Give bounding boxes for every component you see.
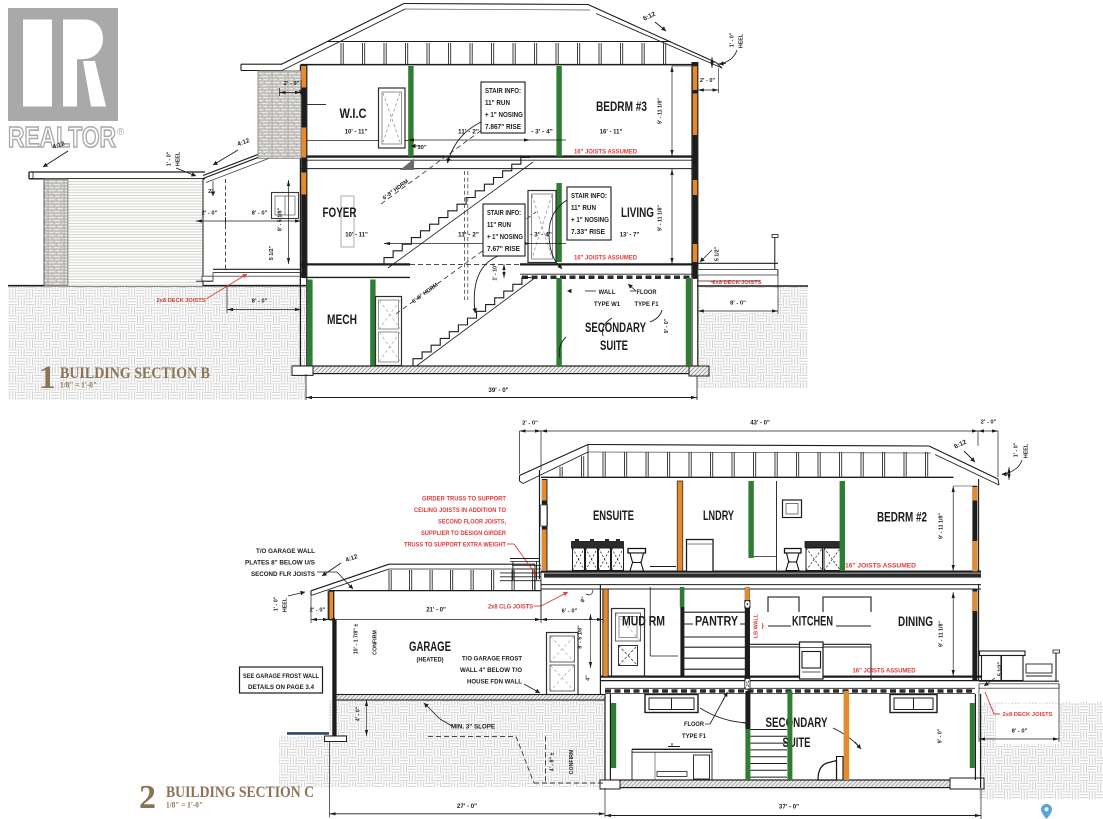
svg-text:7.33" RISE: 7.33" RISE: [571, 229, 605, 236]
svg-text:DETAILS ON PAGE 3.4: DETAILS ON PAGE 3.4: [248, 685, 315, 691]
svg-text:1' - 0": 1' - 0": [1014, 442, 1020, 457]
svg-text:7.67" RISE: 7.67" RISE: [487, 246, 520, 253]
svg-text:MECH: MECH: [327, 312, 357, 327]
svg-text:11" RUN: 11" RUN: [485, 100, 510, 107]
svg-text:4": 4": [586, 675, 592, 681]
svg-text:TRUSS TO SUPPORT EXTRA WEIGHT: TRUSS TO SUPPORT EXTRA WEIGHT: [404, 542, 506, 549]
svg-text:8' - 5 1/8": 8' - 5 1/8": [278, 207, 284, 231]
svg-text:2x8 DECK JOISTS: 2x8 DECK JOISTS: [157, 298, 206, 304]
svg-text:16" JOISTS ASSUMED: 16" JOISTS ASSUMED: [845, 564, 917, 570]
svg-text:SUITE: SUITE: [600, 338, 628, 353]
svg-text:16' - 11": 16' - 11": [600, 130, 623, 136]
svg-text:KITCHEN: KITCHEN: [792, 614, 833, 629]
svg-text:BUILDING SECTION B: BUILDING SECTION B: [60, 365, 210, 382]
svg-text:+ 1" NOSING: + 1" NOSING: [487, 234, 523, 241]
svg-text:TYPE W1: TYPE W1: [594, 302, 621, 308]
svg-text:®: ®: [117, 127, 125, 138]
svg-text:37' - 0": 37' - 0": [779, 804, 799, 811]
svg-text:FOYER: FOYER: [323, 205, 357, 220]
svg-text:2' - 0": 2' - 0": [700, 78, 716, 84]
svg-text:SUPPLIER TO DESIGN GIRDER: SUPPLIER TO DESIGN GIRDER: [421, 530, 507, 537]
svg-text:1: 1: [39, 360, 56, 396]
svg-text:BEDRM #2: BEDRM #2: [877, 510, 927, 525]
svg-text:8' - 5 1/8": 8' - 5 1/8": [578, 625, 584, 649]
svg-text:2x8 DECK JOISTS: 2x8 DECK JOISTS: [713, 280, 762, 286]
svg-text:5 1/2": 5 1/2": [269, 245, 275, 260]
svg-text:4' - 8" ±: 4' - 8" ±: [550, 753, 556, 772]
svg-text:PANTRY: PANTRY: [695, 614, 738, 629]
svg-text:TYPE F1: TYPE F1: [682, 734, 707, 740]
svg-text:16" JOISTS ASSUMED: 16" JOISTS ASSUMED: [574, 150, 638, 156]
svg-text:WALL 4" BELOW T/O: WALL 4" BELOW T/O: [460, 668, 522, 674]
svg-text:9' - 11 1/8": 9' - 11 1/8": [658, 98, 664, 124]
svg-text:9' - 11 1/8": 9' - 11 1/8": [658, 205, 664, 231]
svg-text:2' - 0": 2' - 0": [310, 608, 326, 614]
svg-text:LNDRY: LNDRY: [703, 508, 734, 523]
svg-text:ENSUITE: ENSUITE: [593, 508, 634, 523]
svg-text:2x8 DECK JOISTS: 2x8 DECK JOISTS: [1003, 712, 1053, 718]
svg-text:16" JOISTS ASSUMED: 16" JOISTS ASSUMED: [574, 256, 638, 262]
svg-text:HOUSE FDN WALL: HOUSE FDN WALL: [467, 680, 522, 686]
svg-text:5 1/2": 5 1/2": [998, 661, 1004, 676]
svg-text:10' - 11": 10' - 11": [345, 233, 368, 239]
svg-text:9' - 11 1/8": 9' - 11 1/8": [939, 513, 945, 539]
svg-text:27' - 0": 27' - 0": [457, 803, 477, 810]
svg-text:SECONDARY: SECONDARY: [585, 320, 646, 335]
svg-text:WALL: WALL: [599, 290, 616, 296]
svg-text:2' - 0": 2' - 0": [202, 211, 218, 217]
svg-text:8' - 0": 8' - 0": [252, 211, 268, 217]
svg-text:SUITE: SUITE: [783, 735, 811, 750]
svg-text:SECOND FLR JOISTS: SECOND FLR JOISTS: [251, 572, 315, 578]
svg-text:- 3' - 4": - 3' - 4": [531, 129, 553, 136]
svg-text:6' - 0": 6' - 0": [562, 609, 578, 615]
svg-text:REALTOR: REALTOR: [8, 122, 116, 154]
svg-text:2' - 0": 2' - 0": [522, 421, 538, 427]
svg-text:+ 1" NOSING: + 1" NOSING: [485, 112, 523, 119]
svg-text:16" JOISTS ASSUMED: 16" JOISTS ASSUMED: [853, 669, 917, 675]
svg-text:GARAGE: GARAGE: [409, 639, 451, 654]
svg-text:TYPE F1: TYPE F1: [635, 302, 660, 308]
svg-text:2: 2: [139, 779, 156, 816]
svg-text:HEEL: HEEL: [283, 597, 289, 612]
svg-text:SEE GARAGE FROST WALL: SEE GARAGE FROST WALL: [243, 674, 319, 680]
svg-text:CONFIRM: CONFIRM: [569, 749, 575, 774]
svg-text:HEEL: HEEL: [176, 151, 182, 166]
svg-text:8' - 0": 8' - 0": [252, 299, 268, 305]
svg-text:MUD RM: MUD RM: [622, 614, 665, 629]
svg-text:2' - 0": 2' - 0": [284, 81, 300, 87]
svg-text:1/8" = 1'-0": 1/8" = 1'-0": [60, 381, 97, 390]
svg-text:21' - 0": 21' - 0": [426, 608, 446, 614]
svg-text:(HEATED): (HEATED): [417, 658, 444, 664]
svg-text:CEILING JOISTS IN ADDITION TO: CEILING JOISTS IN ADDITION TO: [414, 507, 506, 514]
svg-text:9' - 11 1/8": 9' - 11 1/8": [939, 621, 945, 647]
svg-text:9' - 0": 9' - 0": [938, 728, 944, 743]
svg-text:BUILDING SECTION C: BUILDING SECTION C: [166, 784, 314, 801]
svg-text:STAIR INFO:: STAIR INFO:: [485, 88, 521, 95]
svg-text:FLOOR: FLOOR: [637, 290, 658, 296]
svg-text:T/O GARAGE WALL: T/O GARAGE WALL: [256, 549, 315, 555]
svg-text:CONFIRM: CONFIRM: [373, 630, 379, 655]
svg-text:11" RUN: 11" RUN: [571, 205, 596, 212]
svg-text:10' - 1 7/8" ±: 10' - 1 7/8" ±: [354, 624, 360, 655]
svg-text:1' - 0": 1' - 0": [274, 596, 280, 611]
svg-text:STAIR INFO:: STAIR INFO:: [487, 210, 521, 217]
svg-text:43' - 0": 43' - 0": [750, 421, 770, 427]
svg-text:SECOND FLOOR JOISTS,: SECOND FLOOR JOISTS,: [438, 519, 506, 526]
svg-text:DINING: DINING: [898, 614, 933, 629]
svg-text:7.867" RISE: 7.867" RISE: [485, 124, 521, 131]
svg-text:GIRDER TRUSS TO SUPPORT: GIRDER TRUSS TO SUPPORT: [422, 496, 506, 503]
svg-text:10' - 11": 10' - 11": [345, 130, 368, 136]
svg-text:LIVING: LIVING: [621, 205, 654, 220]
svg-text:1' - 0": 1' - 0": [167, 151, 173, 166]
svg-text:+ 1" NOSING: + 1" NOSING: [571, 217, 609, 224]
svg-text:39' - 0": 39' - 0": [488, 387, 508, 394]
svg-text:4' - 0": 4' - 0": [356, 706, 362, 721]
svg-text:STAIR INFO:: STAIR INFO:: [571, 193, 607, 200]
svg-text:HEEL: HEEL: [1024, 443, 1030, 458]
svg-text:8' - 0": 8' - 0": [730, 301, 746, 307]
svg-text:11' - 2": 11' - 2": [458, 232, 479, 239]
svg-text:1/8" = 1'-0": 1/8" = 1'-0": [166, 801, 203, 810]
svg-text:MIN. 3" SLOPE: MIN. 3" SLOPE: [451, 725, 495, 731]
svg-text:BEDRM #3: BEDRM #3: [596, 99, 647, 114]
svg-text:1' - 10": 1' - 10": [493, 263, 499, 281]
svg-text:8' - 0": 8' - 0": [1012, 729, 1028, 735]
svg-text:5 1/2": 5 1/2": [715, 246, 721, 261]
svg-text:T/O GARAGE FROST: T/O GARAGE FROST: [462, 657, 522, 663]
svg-text:W.I.C: W.I.C: [340, 106, 367, 121]
svg-text:2' - 0": 2' - 0": [981, 420, 997, 426]
svg-text:HEEL: HEEL: [739, 33, 745, 48]
svg-text:LB WALL: LB WALL: [754, 613, 760, 638]
svg-text:11" RUN: 11" RUN: [487, 222, 511, 229]
svg-text:9' - 0": 9' - 0": [664, 318, 670, 333]
svg-text:FLOOR: FLOOR: [684, 722, 705, 728]
svg-text:SECONDARY: SECONDARY: [766, 715, 828, 730]
svg-text:PLATES 8" BELOW U/S: PLATES 8" BELOW U/S: [245, 561, 315, 567]
svg-text:1' - 0": 1' - 0": [730, 32, 736, 47]
svg-text:13' - 7": 13' - 7": [620, 233, 640, 239]
svg-text:2x8 CLG JOISTS: 2x8 CLG JOISTS: [488, 604, 533, 611]
